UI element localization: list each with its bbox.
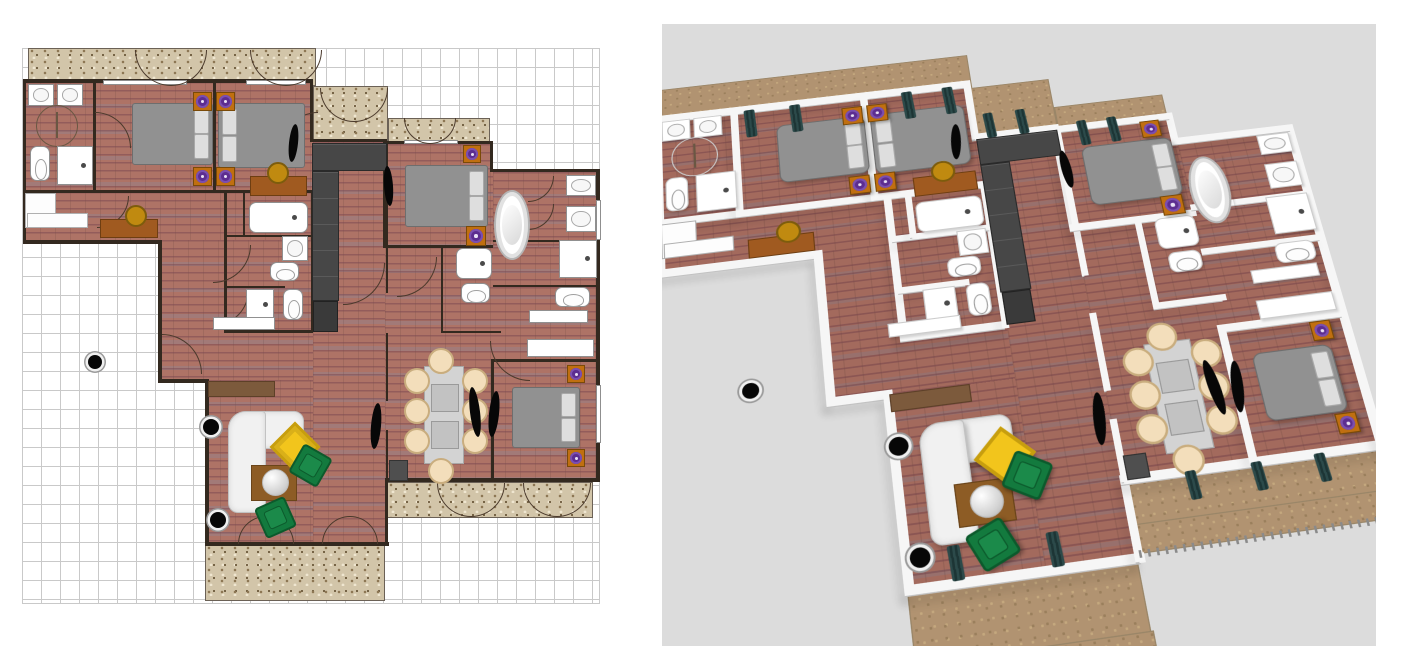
center-toilet-2 [965,282,993,317]
center-bathtub [249,202,308,233]
shower-drain [944,300,951,306]
bedside-lamp [196,95,209,108]
center-toilet-2 [283,289,303,320]
tub-faucet [480,261,485,266]
toilet-bowl [972,293,990,314]
hall-mid [816,231,1015,402]
bedside-lamp [466,148,478,160]
kitchen-fridge [313,301,338,332]
bed-3 [405,165,488,227]
tub-faucet [964,209,970,215]
pillow [469,196,484,221]
toilet-bowl [276,269,294,281]
kitchen-fridge [1002,289,1036,325]
wardrobe [27,213,88,228]
pillow [1310,350,1335,379]
sink-basin [571,211,591,228]
bedside-lamp [196,170,209,183]
wing-sink-1 [566,175,596,196]
toilet-bowl [1284,247,1312,263]
bed-4 [512,387,580,448]
dining-chair [404,428,430,454]
stove [1123,452,1151,480]
screenshot-canvas [0,0,1416,672]
table-pedestal [431,384,459,412]
nightstand [1160,194,1187,216]
nightstand [466,226,486,246]
nightstand [866,103,889,122]
bedside-lamp [1164,197,1183,212]
pillow [194,109,209,134]
sink-basin [62,88,79,102]
pillow [194,134,209,159]
table-pedestal [1164,399,1205,435]
oval-bathtub [494,190,530,260]
wing-shower [559,240,597,278]
wall-outer-bottom-left [23,240,161,244]
wing-sink-2 [1264,160,1303,188]
nightstand [216,92,235,111]
bedside-lamp [219,170,232,183]
wing-sink-1 [1256,132,1294,155]
wing-shelf-1 [529,310,588,323]
nightstand [841,106,863,125]
stove [389,460,408,481]
ensuite-bathtub [1153,214,1200,250]
table-sphere [262,469,289,496]
armchair-seat [976,528,1010,561]
bathroom1-sink-2 [57,84,83,106]
center-sink [956,228,989,256]
dining-chair [404,368,430,394]
bathroom1-toilet [30,146,50,181]
toilet-bowl [467,290,485,302]
ensuite-toilet [461,283,490,303]
bedside-lamp [570,452,582,464]
wall-cluster-h2 [227,286,285,288]
bedside-lamp [852,178,868,192]
potted-plant [88,355,102,369]
center-counter [213,317,275,330]
bathroom1-round-fixture [36,105,78,147]
bedside-lamp [570,368,582,380]
fixture-arrow [56,112,58,138]
dining-chair [404,398,430,424]
table-pedestal [431,421,459,449]
3d-scene [662,24,1376,646]
dining-table [424,366,464,464]
wing-toilet [555,287,590,307]
3d-floor-plan-view [662,24,1376,646]
sink-basin [1263,136,1287,151]
bed-1 [776,116,870,184]
wall-wing-top [493,169,600,172]
bedside-lamp [469,229,483,243]
bathroom1-sink-1 [28,84,54,106]
bedside-lamp [1143,123,1158,135]
sink-basin [962,233,983,251]
sink-basin [698,119,717,134]
toilet-bowl [671,188,686,210]
kitchen-counter-side [312,171,339,301]
nightstand [567,449,585,467]
tub-faucet [292,215,297,220]
toilet-bowl [563,294,585,306]
nightstand [874,171,897,191]
shower-drain [585,256,590,261]
shower-drain [81,163,86,168]
bedside-lamp [1313,323,1330,338]
toilet-bowl [1176,257,1200,272]
wall-ensuite-left [441,245,443,333]
window [596,385,601,443]
2d-floor-plan [0,0,660,672]
wall-outer-v-205 [205,379,209,546]
wall-ensuite-bottom [441,331,501,333]
pillow [1156,166,1178,191]
sink-basin [571,179,591,192]
toilet-bowl [35,159,48,180]
bedside-lamp [870,106,885,119]
wall-outer-h-380 [158,379,208,383]
window [596,200,601,240]
wing-sink-2 [566,206,596,232]
wall-v-491 [490,143,493,172]
tub-basin [502,205,522,244]
center-sink [282,236,308,261]
tub-faucet [1183,228,1190,234]
pillow [1317,378,1342,408]
potted-plant [210,512,226,528]
wall-corridor-right-b [386,333,388,401]
potted-plant [203,419,219,435]
fixture-arrow [693,144,696,168]
pillow [469,171,484,196]
nightstand [567,365,585,383]
bedside-lamp [1339,415,1357,431]
shower-drain [263,302,268,307]
pillow [877,142,896,168]
bathroom1-sink-2 [693,115,722,138]
sink-basin [287,240,304,256]
center-washer [246,289,274,320]
ensuite-bathtub [456,248,492,279]
nightstand [193,92,212,111]
pillow [1151,143,1173,168]
sideboard [208,381,275,397]
nightstand [463,145,481,163]
center-toilet-1 [270,262,299,281]
bathroom1-shower [695,170,737,212]
toilet-bowl [288,300,301,319]
bathroom1-shower [57,146,93,185]
desk-chair [267,162,289,184]
pillow [222,109,237,135]
wall-v-385-low [385,479,388,545]
desk-chair [125,205,147,227]
shower-drain [723,187,729,192]
terrace-living [205,545,385,601]
pillow [844,121,863,145]
potted-plant [742,382,760,400]
dining-chair [428,458,454,484]
pillow [561,393,576,417]
armchair-seat [298,453,324,479]
wall-living-dining-wall [386,430,388,480]
shower-drain [1298,209,1305,215]
bedside-lamp [219,95,232,108]
sink-basin [1271,165,1297,183]
nightstand [1139,120,1162,139]
dining-chair [428,348,454,374]
nightstand [216,167,235,186]
pillow [561,418,576,442]
nightstand [193,167,212,186]
wall-kitchen-top [310,139,387,142]
armchair-seat [1012,460,1043,490]
kitchen-counter-top [312,143,387,171]
bed-1 [132,103,213,165]
pillow [874,118,893,143]
armchair-seat [263,505,288,530]
bedside-lamp [878,175,894,189]
nightstand [848,174,871,195]
pillow [222,136,237,162]
toilet-bowl [955,262,978,277]
wall-cluster-bottom [224,330,313,333]
sink-basin [33,88,50,102]
bathroom1-toilet [665,176,689,212]
sink-basin [667,123,686,138]
wing-shelf-2 [527,339,594,357]
pillow [846,145,865,170]
table-pedestal [1156,359,1196,394]
bedside-lamp [845,109,860,122]
wall-cluster-v1 [243,190,245,235]
